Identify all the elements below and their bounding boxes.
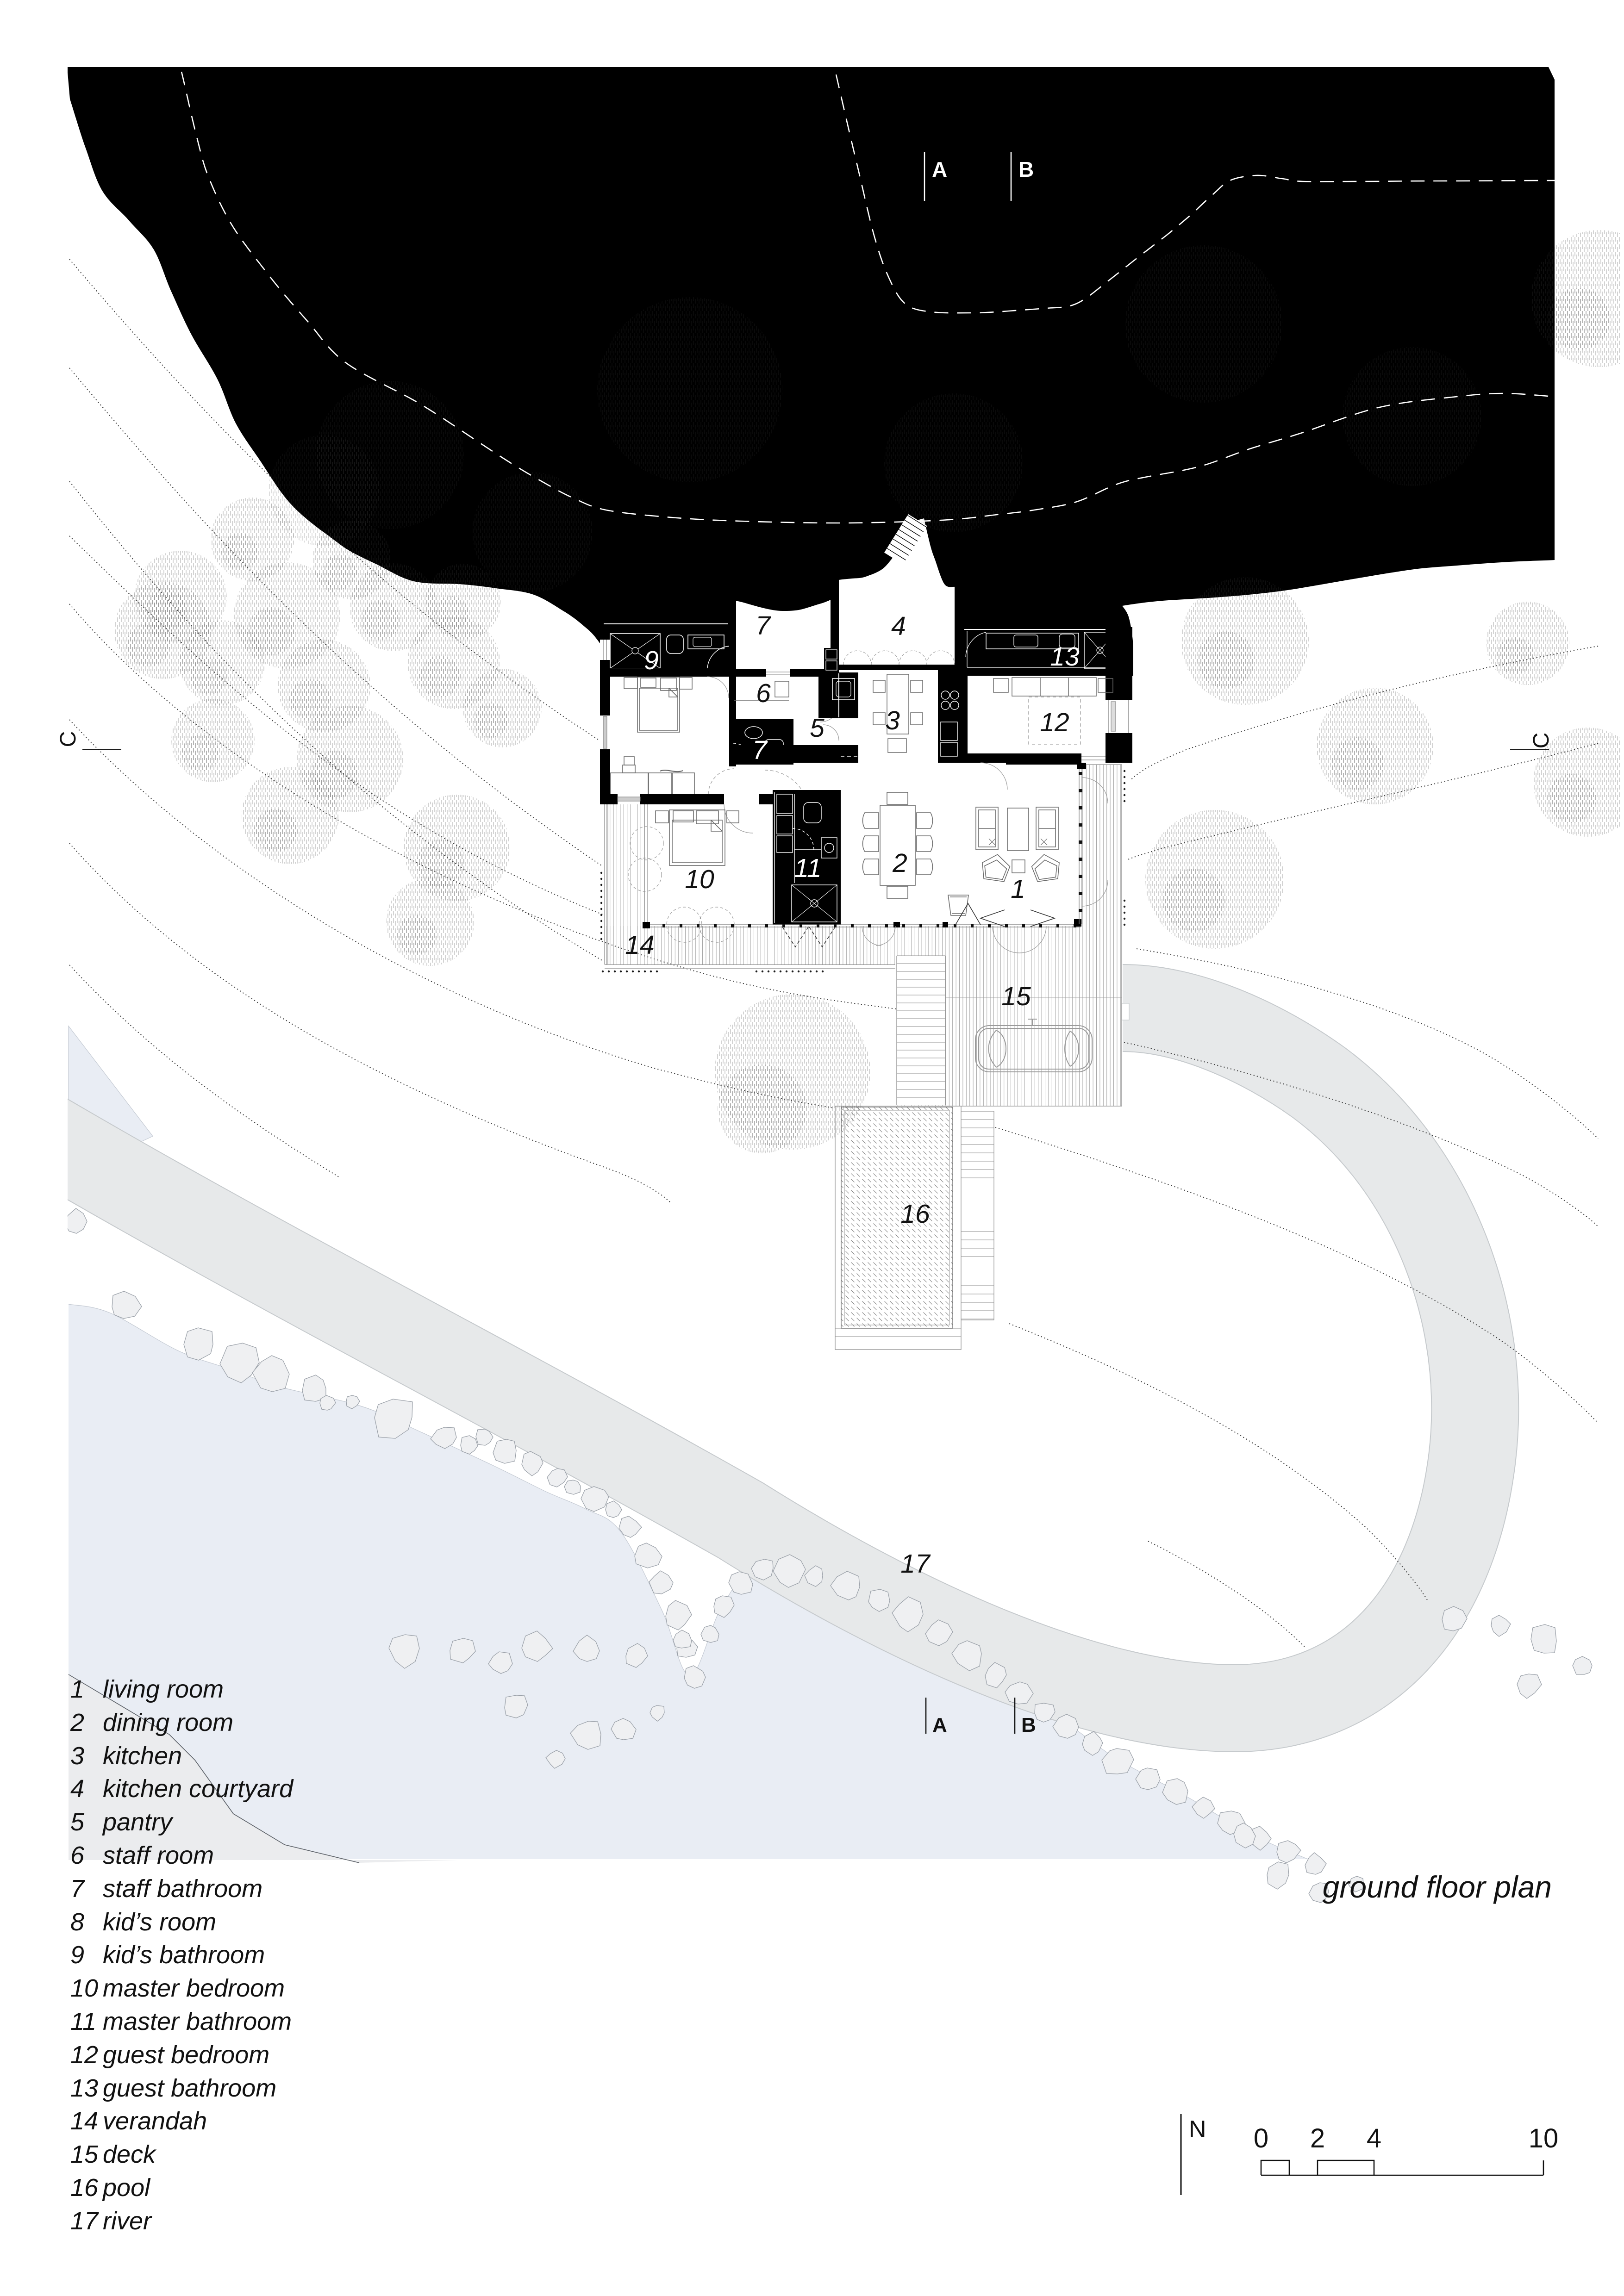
- svg-text:8: 8: [70, 1908, 84, 1936]
- svg-text:15: 15: [1001, 982, 1031, 1011]
- svg-text:9: 9: [70, 1941, 84, 1969]
- svg-text:9: 9: [644, 646, 659, 675]
- svg-text:dining room: dining room: [103, 1709, 233, 1736]
- svg-text:river: river: [103, 2207, 152, 2235]
- svg-text:10: 10: [1529, 2123, 1559, 2153]
- svg-text:B: B: [1018, 157, 1034, 181]
- svg-text:C: C: [1529, 733, 1554, 749]
- svg-text:17: 17: [70, 2207, 99, 2235]
- svg-text:staff bathroom: staff bathroom: [103, 1875, 262, 1903]
- svg-text:ground floor plan: ground floor plan: [1323, 1870, 1552, 1904]
- svg-text:16: 16: [70, 2174, 99, 2202]
- svg-text:7: 7: [752, 735, 768, 765]
- svg-text:guest bathroom: guest bathroom: [103, 2074, 276, 2102]
- svg-text:guest bedroom: guest bedroom: [103, 2041, 269, 2069]
- svg-text:12: 12: [1040, 708, 1069, 737]
- svg-text:kitchen: kitchen: [103, 1742, 182, 1770]
- svg-text:17: 17: [900, 1549, 931, 1579]
- svg-text:11: 11: [794, 853, 821, 883]
- svg-text:deck: deck: [103, 2140, 157, 2168]
- svg-text:7: 7: [756, 611, 771, 641]
- svg-text:living room: living room: [103, 1675, 224, 1703]
- svg-text:pantry: pantry: [102, 1808, 174, 1836]
- svg-text:10: 10: [685, 865, 714, 894]
- svg-text:3: 3: [885, 706, 900, 735]
- svg-text:master bedroom: master bedroom: [103, 1974, 285, 2002]
- svg-text:staff room: staff room: [103, 1842, 214, 1869]
- svg-text:2: 2: [1310, 2123, 1325, 2153]
- svg-text:2: 2: [892, 848, 907, 878]
- svg-text:13: 13: [1050, 642, 1080, 672]
- svg-text:7: 7: [70, 1875, 85, 1903]
- svg-text:4: 4: [891, 611, 906, 641]
- svg-text:kitchen courtyard: kitchen courtyard: [103, 1775, 294, 1803]
- svg-text:3: 3: [70, 1742, 84, 1770]
- svg-text:C: C: [56, 731, 81, 747]
- svg-text:0: 0: [1254, 2123, 1268, 2153]
- svg-text:2: 2: [70, 1709, 84, 1736]
- svg-text:verandah: verandah: [103, 2107, 207, 2135]
- svg-text:13: 13: [70, 2074, 98, 2102]
- svg-text:1: 1: [70, 1675, 84, 1703]
- svg-text:kid’s bathroom: kid’s bathroom: [103, 1941, 265, 1969]
- svg-text:16: 16: [900, 1199, 930, 1229]
- svg-text:4: 4: [1367, 2123, 1381, 2153]
- svg-text:15: 15: [70, 2140, 99, 2168]
- svg-text:A: A: [932, 1714, 947, 1736]
- svg-text:12: 12: [70, 2041, 98, 2069]
- svg-text:N: N: [1189, 2116, 1206, 2143]
- svg-text:A: A: [932, 157, 947, 181]
- svg-text:pool: pool: [102, 2174, 151, 2202]
- svg-text:kid’s room: kid’s room: [103, 1908, 216, 1936]
- svg-text:5: 5: [70, 1808, 85, 1836]
- svg-text:4: 4: [70, 1775, 84, 1803]
- svg-text:master bathroom: master bathroom: [103, 2008, 292, 2035]
- svg-text:14: 14: [70, 2107, 98, 2135]
- svg-text:6: 6: [70, 1842, 85, 1869]
- svg-text:6: 6: [756, 678, 771, 708]
- svg-text:11: 11: [70, 2008, 96, 2035]
- svg-text:5: 5: [810, 713, 824, 743]
- svg-text:B: B: [1021, 1714, 1036, 1736]
- svg-text:1: 1: [1011, 874, 1025, 904]
- svg-text:14: 14: [625, 930, 654, 960]
- svg-text:10: 10: [70, 1974, 98, 2002]
